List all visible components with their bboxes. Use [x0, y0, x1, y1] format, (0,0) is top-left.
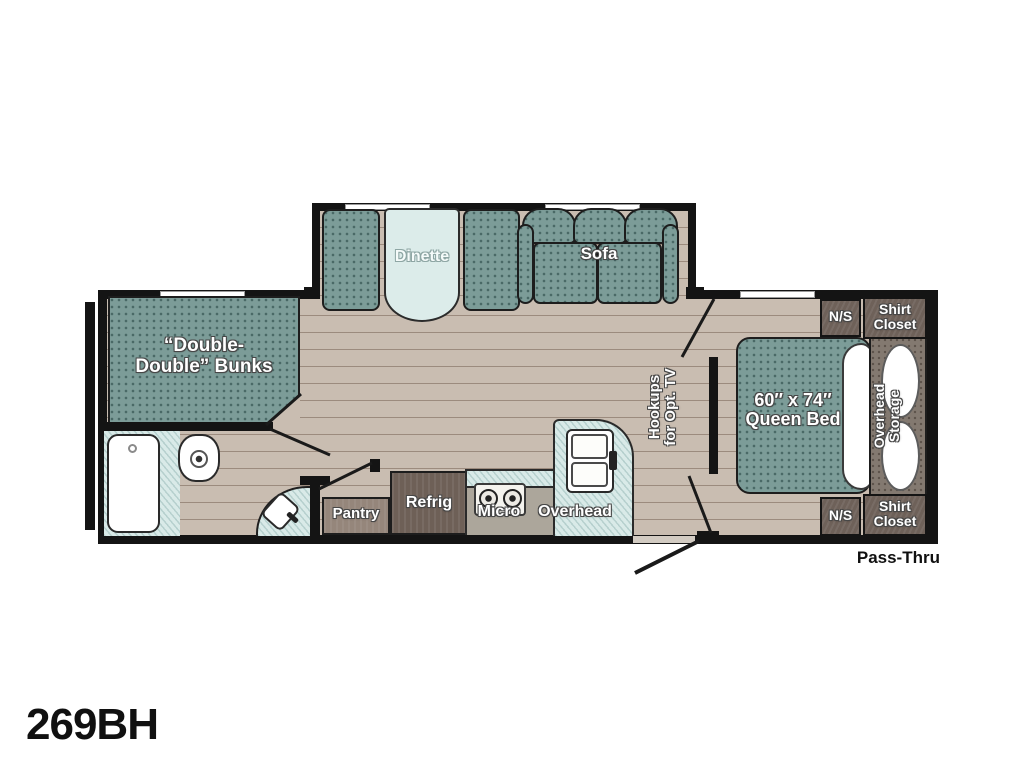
bath-wall-stub: [310, 478, 320, 536]
nightstand-bottom-text: N/S: [829, 507, 852, 523]
overhead-storage-label: Overhead Storage: [872, 351, 906, 481]
kitchen-sink-basin-top: [571, 434, 608, 459]
entry-door-swing: [635, 541, 699, 573]
sofa-back-cushion-2: [573, 208, 627, 244]
queen-bed-line1: 60″ x 74″: [754, 390, 831, 410]
queen-bed-line2: Queen Bed: [745, 409, 840, 429]
overhead-storage-line1: Overhead: [871, 384, 887, 449]
refrig-label-text: Refrig: [406, 494, 452, 511]
shirt-closet-top-label: Shirt Closet: [863, 302, 927, 332]
dinette-bench-left: [322, 209, 380, 311]
floorplan-image: Dinette Sofa “Double- Double” Bunks Pant…: [0, 0, 1024, 768]
kitchen-faucet: [609, 451, 617, 470]
tv-hookups-line1: Hookups: [646, 375, 663, 439]
overhead-label-text: Overhead: [538, 503, 612, 520]
dinette-label-text: Dinette: [395, 248, 449, 265]
wall-bottom: [98, 535, 938, 544]
pantry-label-text: Pantry: [333, 505, 380, 522]
sofa-label: Sofa: [563, 245, 635, 263]
shirt-closet-bottom-line2: Closet: [874, 513, 917, 529]
slideout-wall-right: [688, 203, 696, 299]
overhead-label: Overhead: [528, 503, 622, 520]
nightstand-bottom-label: N/S: [820, 508, 861, 523]
model-label: 269BH: [26, 700, 158, 750]
tv-hookups-label: Hookups for Opt. TV: [647, 347, 687, 467]
queen-bed-label: 60″ x 74″ Queen Bed: [738, 391, 848, 430]
refrig-label: Refrig: [390, 494, 468, 511]
entry-door-opening: [633, 536, 695, 543]
bunks-label-line2: Double” Bunks: [135, 356, 272, 377]
pass-thru-label: Pass-Thru: [835, 548, 940, 568]
pass-thru-text: Pass-Thru: [857, 548, 940, 567]
micro-label: Micro: [470, 503, 528, 520]
tub-drain: [128, 444, 137, 453]
kitchen-sink-basin-bottom: [571, 462, 608, 487]
dinette-label: Dinette: [386, 248, 458, 265]
tv-wall: [709, 357, 718, 474]
model-text: 269BH: [26, 700, 158, 749]
pantry-label: Pantry: [322, 506, 390, 522]
rear-bumper: [85, 302, 95, 530]
sofa-label-text: Sofa: [581, 244, 618, 263]
window-bedroom: [740, 291, 815, 298]
sofa-armrest-right: [662, 224, 679, 304]
nightstand-top-text: N/S: [829, 308, 852, 324]
slideout-wall-left: [312, 203, 320, 299]
shirt-closet-top-line2: Closet: [874, 316, 917, 332]
bath-wall-cap: [300, 476, 330, 485]
slideout-corner-right: [686, 287, 704, 299]
sofa-armrest-left: [517, 224, 534, 304]
dinette-bench-right: [463, 209, 520, 311]
entry-hinge-block: [697, 531, 719, 543]
wall-below-bunks: [98, 422, 273, 431]
bunks-label: “Double- Double” Bunks: [114, 336, 294, 377]
micro-label-text: Micro: [478, 503, 521, 520]
wall-right: [927, 290, 938, 544]
shirt-closet-bottom-label: Shirt Closet: [863, 499, 927, 529]
shirt-closet-top-line1: Shirt: [879, 301, 911, 317]
bunks-label-line1: “Double-: [164, 335, 244, 356]
shirt-closet-bottom-line1: Shirt: [879, 498, 911, 514]
nightstand-top-label: N/S: [820, 309, 861, 324]
overhead-storage-line2: Storage: [886, 390, 902, 442]
toilet-bowl: [190, 450, 208, 468]
slideout-corner-left: [304, 287, 320, 299]
door-stop-block: [370, 459, 380, 472]
tv-hookups-line2: for Opt. TV: [662, 368, 679, 446]
